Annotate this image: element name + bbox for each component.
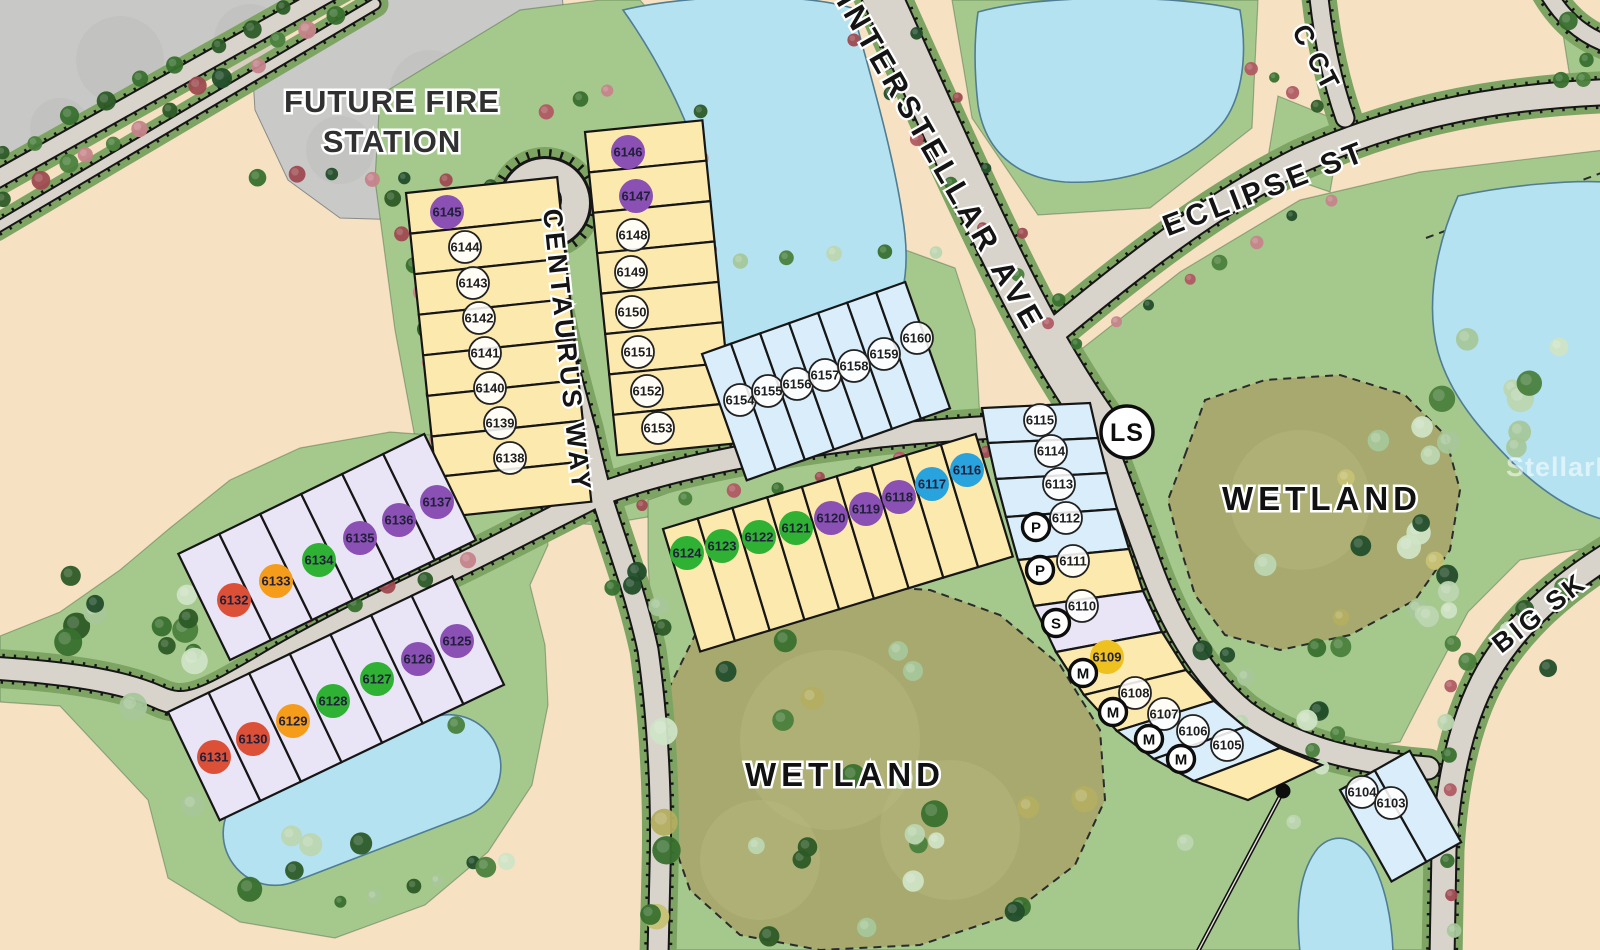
lot-number: 6113 <box>1045 477 1073 492</box>
lot-number: 6109 <box>1093 650 1122 665</box>
lot-number: 6104 <box>1348 785 1378 800</box>
ls-label: LS <box>1110 419 1144 447</box>
tree-highlight <box>191 79 199 87</box>
tree-highlight <box>1340 472 1348 480</box>
lot-marker-6139: 6139 <box>484 407 516 439</box>
lot-marker-6127: 6127 <box>360 662 394 696</box>
tree-highlight <box>288 864 296 872</box>
tree-highlight <box>801 840 810 849</box>
lot-marker-6151: 6151 <box>622 336 654 368</box>
tree-highlight <box>1512 424 1522 434</box>
tree-highlight <box>182 612 191 621</box>
tree-highlight <box>1312 704 1321 713</box>
tree-highlight <box>1446 681 1452 687</box>
tree-highlight <box>420 574 427 581</box>
lot-marker-6116: 6116 <box>950 453 984 487</box>
tree-highlight <box>1335 611 1343 619</box>
tree-highlight <box>1441 584 1451 594</box>
lot-marker-6114: 6114 <box>1035 435 1067 467</box>
lot-number: 6154 <box>726 393 756 408</box>
lot-marker-6153: 6153 <box>642 412 674 444</box>
lot-number: 6142 <box>465 311 494 326</box>
tree-highlight <box>367 174 374 181</box>
lot-number: 6152 <box>633 384 662 399</box>
tree-highlight <box>396 228 403 235</box>
site-plan-canvas: 6145614461436142614161406139613861466147… <box>0 0 1600 950</box>
lot-number: 6143 <box>459 276 488 291</box>
lot-number: 6107 <box>1150 707 1179 722</box>
tree-highlight <box>1019 229 1024 234</box>
tree-highlight <box>180 587 189 596</box>
tree-highlight <box>1288 88 1294 94</box>
tree-highlight <box>58 632 71 645</box>
tree-highlight <box>169 59 177 67</box>
lot-number: 6159 <box>870 347 899 362</box>
lot-number: 6145 <box>433 205 462 220</box>
lot-number: 6119 <box>852 502 880 517</box>
tree-highlight <box>773 484 779 490</box>
lot-number: 6148 <box>619 228 648 243</box>
tree-highlight <box>681 493 687 499</box>
tree-highlight <box>908 827 917 836</box>
lot-number: 6127 <box>363 672 392 687</box>
tree-highlight <box>272 34 279 41</box>
tree-highlight <box>1520 374 1531 385</box>
lot-marker-6149: 6149 <box>615 256 647 288</box>
tree-highlight <box>1289 817 1296 824</box>
lot-marker-6129: 6129 <box>276 704 310 738</box>
tree-highlight <box>1433 389 1445 401</box>
tree-highlight <box>1442 856 1449 863</box>
lot-number: 6137 <box>423 495 452 510</box>
tree-highlight <box>450 719 458 727</box>
lot-number: 6117 <box>918 477 946 492</box>
lot-number: 6156 <box>783 377 812 392</box>
tree-highlight <box>134 73 141 80</box>
tree-highlight <box>860 920 869 929</box>
tree-highlight <box>64 568 73 577</box>
lot-marker-6126: 6126 <box>401 642 435 676</box>
tree-highlight <box>931 835 938 842</box>
lot-marker-6120: 6120 <box>814 501 848 535</box>
tree-highlight <box>1447 638 1454 645</box>
lot-marker-6140: 6140 <box>474 372 506 404</box>
tree-highlight <box>1509 440 1518 449</box>
badge-letter: M <box>1107 705 1120 722</box>
tree-highlight <box>369 891 376 898</box>
lot-marker-6148: 6148 <box>617 219 649 251</box>
lot-marker-6113: 6113 <box>1043 468 1075 500</box>
tree-highlight <box>1300 712 1310 722</box>
lot-marker-6138: 6138 <box>494 442 526 474</box>
tree-highlight <box>906 873 916 883</box>
tree-highlight <box>1552 340 1560 348</box>
tree-highlight <box>575 93 582 100</box>
lot-number: 6149 <box>617 265 646 280</box>
lot-number: 6121 <box>782 521 811 536</box>
tree-highlight <box>1542 662 1550 670</box>
tree-highlight <box>62 157 71 166</box>
tree-highlight <box>804 690 814 700</box>
lot-marker-6128: 6128 <box>316 684 350 718</box>
tree-highlight <box>1258 557 1268 567</box>
lot-marker-6111: 6111 <box>1057 545 1089 577</box>
lot-marker-6147: 6147 <box>619 179 653 213</box>
tree-highlight <box>89 597 97 605</box>
fire-station-label-line1: FUTURE FIRE <box>284 84 500 119</box>
tree-highlight <box>30 138 37 145</box>
lot-number: 6146 <box>614 145 643 160</box>
lot-marker-6159: 6159 <box>868 338 900 370</box>
lot-marker-6150: 6150 <box>616 296 648 328</box>
tree-highlight <box>479 860 488 869</box>
lot-number: 6140 <box>476 381 505 396</box>
wetland-label-right: WETLAND <box>1222 480 1422 517</box>
tree-highlight <box>541 106 548 113</box>
badge-P-6112: P <box>1023 514 1050 541</box>
badge-M-6108: M <box>1100 699 1127 726</box>
tree-highlight <box>301 23 309 31</box>
tree-highlight <box>1354 538 1363 547</box>
tree-highlight <box>1332 728 1339 735</box>
tree-highlight <box>100 94 109 103</box>
lot-marker-6157: 6157 <box>809 359 841 391</box>
tree-highlight <box>185 797 195 807</box>
tree-highlight <box>442 175 448 181</box>
tree-highlight <box>1582 55 1588 61</box>
badge-M-6107: M <box>1136 726 1163 753</box>
tree-highlight <box>165 105 172 112</box>
lot-marker-6135: 6135 <box>343 521 377 555</box>
lot-marker-6117: 6117 <box>915 467 949 501</box>
tree-highlight <box>1240 671 1248 679</box>
tree-highlight <box>1440 434 1450 444</box>
tree-highlight <box>630 565 639 574</box>
lot-number: 6132 <box>220 593 249 608</box>
tree-highlight <box>777 632 787 642</box>
lot-marker-6154: 6154 <box>724 384 756 416</box>
lot-marker-6152: 6152 <box>631 375 663 407</box>
lot-number: 6138 <box>496 451 525 466</box>
tree-highlight <box>34 174 42 182</box>
lot-number: 6103 <box>1377 796 1406 811</box>
lot-marker-6104: 6104 <box>1346 776 1378 808</box>
tree-highlight <box>638 501 643 506</box>
tree-highlight <box>1054 295 1060 301</box>
lot-number: 6126 <box>404 652 433 667</box>
lot-marker-6131: 6131 <box>197 740 231 774</box>
tree-highlight <box>336 897 341 902</box>
badge-letter: P <box>1035 563 1045 580</box>
tree-highlight <box>891 644 900 653</box>
lot-number: 6158 <box>840 359 869 374</box>
lot-marker-6156: 6156 <box>781 368 813 400</box>
lot-marker-6134: 6134 <box>302 543 336 577</box>
tree-highlight <box>1424 448 1433 457</box>
lot-number: 6112 <box>1052 511 1080 526</box>
tree-highlight <box>657 621 665 629</box>
tree-highlight <box>1447 891 1453 897</box>
tree-highlight <box>185 651 197 663</box>
tree-highlight <box>603 86 608 91</box>
tree-highlight <box>1429 554 1437 562</box>
tree-highlight <box>124 697 136 709</box>
tree-highlight <box>607 582 614 589</box>
lot-marker-6115: 6115 <box>1024 404 1056 436</box>
tree-highlight <box>303 836 313 846</box>
tree-highlight <box>329 9 337 17</box>
tree-highlight <box>776 712 786 722</box>
fire-station-label-line2: STATION <box>323 124 461 159</box>
tree-highlight <box>880 246 887 253</box>
lot-number: 6115 <box>1026 413 1054 428</box>
tree-highlight <box>251 171 259 179</box>
lot-number: 6139 <box>486 416 515 431</box>
tree-highlight <box>1421 609 1431 619</box>
tree-highlight <box>1562 14 1570 22</box>
lot-number: 6144 <box>451 240 481 255</box>
tree-highlight <box>1308 745 1315 752</box>
badge-letter: P <box>1031 520 1041 537</box>
lot-number: 6136 <box>385 513 414 528</box>
lot-number: 6133 <box>262 574 291 589</box>
tree-highlight <box>696 106 702 112</box>
lot-number: 6128 <box>319 694 348 709</box>
badge-M-6109: M <box>1070 660 1097 687</box>
tree-highlight <box>1555 74 1562 81</box>
lot-marker-6141: 6141 <box>469 337 501 369</box>
lot-marker-6118: 6118 <box>882 480 916 514</box>
tree-highlight <box>1415 419 1425 429</box>
tree-highlight <box>983 164 988 169</box>
lot-number: 6110 <box>1068 599 1096 614</box>
lot-number: 6130 <box>239 732 268 747</box>
lot-number: 6155 <box>754 384 783 399</box>
lot-number: 6114 <box>1037 444 1066 459</box>
tree-highlight <box>762 929 771 938</box>
tree-highlight <box>469 858 475 864</box>
badge-S-6110: S <box>1043 610 1070 637</box>
tree-highlight <box>906 664 915 673</box>
lot-marker-6146: 6146 <box>611 135 645 169</box>
tree-highlight <box>1113 318 1118 323</box>
lot-marker-6103: 6103 <box>1375 787 1407 819</box>
lot-number: 6106 <box>1179 724 1208 739</box>
lot-number: 6131 <box>200 750 229 765</box>
tree-highlight <box>161 640 169 648</box>
tree-highlight <box>80 149 87 156</box>
tree-highlight <box>816 473 821 478</box>
tree-highlight <box>1008 904 1017 913</box>
lot-marker-6112: 6112 <box>1050 502 1082 534</box>
tree-highlight <box>1578 74 1585 81</box>
lot-number: 6118 <box>885 490 913 505</box>
tree-highlight <box>241 880 252 891</box>
tree-highlight <box>1327 196 1332 201</box>
tree-highlight <box>1443 604 1450 611</box>
lot-marker-6155: 6155 <box>752 375 784 407</box>
lot-number: 6122 <box>745 530 774 545</box>
badge-P-6111: P <box>1027 557 1054 584</box>
tree-highlight <box>1440 568 1450 578</box>
tree-highlight <box>657 840 670 853</box>
tree-highlight <box>1459 331 1469 341</box>
tree-highlight <box>278 2 284 8</box>
badge-letter: M <box>1077 666 1090 683</box>
lot-marker-6133: 6133 <box>259 564 293 598</box>
lot-number: 6111 <box>1059 554 1087 569</box>
tree-highlight <box>1247 64 1253 70</box>
lot-marker-6143: 6143 <box>457 267 489 299</box>
tree-highlight <box>1214 257 1221 264</box>
tree-highlight <box>1145 301 1150 306</box>
tree-highlight <box>1334 639 1343 648</box>
tree-highlight <box>284 828 293 837</box>
tree-highlight <box>500 855 508 863</box>
site-plan-map: 6145614461436142614161406139613861466147… <box>0 0 1600 950</box>
tree-highlight <box>1179 837 1186 844</box>
tree-highlight <box>729 485 735 491</box>
lift-station-badge: LS <box>1101 406 1153 458</box>
tree-highlight <box>253 60 260 67</box>
lot-number: 6141 <box>471 346 500 361</box>
tree-highlight <box>327 170 333 176</box>
tree-highlight <box>1222 649 1229 656</box>
tree-highlight <box>1073 340 1078 345</box>
lot-marker-6158: 6158 <box>838 350 870 382</box>
tree-highlight <box>1440 716 1448 724</box>
tree-highlight <box>925 804 937 816</box>
lot-marker-6137: 6137 <box>420 485 454 519</box>
tree-highlight <box>400 174 406 180</box>
tree-highlight <box>134 123 141 130</box>
lot-marker-6136: 6136 <box>382 503 416 537</box>
tree-highlight <box>751 840 759 848</box>
lot-number: 6108 <box>1121 686 1150 701</box>
lot-number: 6150 <box>618 305 647 320</box>
tree-highlight <box>954 94 959 99</box>
tree-highlight <box>655 813 667 825</box>
tree-highlight <box>1075 790 1087 802</box>
tree-highlight <box>1271 74 1276 79</box>
lot-number: 6124 <box>673 546 703 561</box>
lot-marker-6105: 6105 <box>1211 729 1243 761</box>
tree-highlight <box>1461 655 1469 663</box>
tree-highlight <box>409 881 416 888</box>
tree-highlight <box>719 664 728 673</box>
tree-highlight <box>1446 785 1452 791</box>
tree-highlight <box>829 248 836 255</box>
lot-marker-6130: 6130 <box>236 722 270 756</box>
tree-highlight <box>982 447 988 453</box>
lot-marker-6106: 6106 <box>1177 715 1209 747</box>
wetland-label-central: WETLAND <box>745 756 945 793</box>
lot-marker-6122: 6122 <box>742 520 776 554</box>
tree-highlight <box>1252 238 1258 244</box>
tree-highlight <box>651 599 660 608</box>
lot-number: 6160 <box>903 331 932 346</box>
tree-highlight <box>155 619 164 628</box>
tree-highlight <box>654 721 667 734</box>
tree-highlight <box>214 41 221 48</box>
badge-letter: S <box>1051 616 1061 633</box>
tree-highlight <box>912 29 918 35</box>
lot-marker-6121: 6121 <box>779 511 813 545</box>
lot-marker-6145: 6145 <box>430 195 464 229</box>
lot-number: 6125 <box>443 634 472 649</box>
tree-highlight <box>215 71 224 80</box>
tree-highlight <box>1371 433 1381 443</box>
tree-highlight <box>433 876 439 882</box>
lot-number: 6157 <box>811 368 840 383</box>
badge-letter: M <box>1175 752 1188 769</box>
lot-marker-6125: 6125 <box>440 624 474 658</box>
tree-highlight <box>781 253 788 260</box>
lot-number: 6153 <box>644 421 673 436</box>
tree-highlight <box>1186 275 1191 280</box>
lot-number: 6135 <box>346 531 375 546</box>
tree-highlight <box>1196 643 1205 652</box>
lot-number: 6116 <box>953 463 981 478</box>
badge-M-6106: M <box>1168 746 1195 773</box>
tree-highlight <box>1313 102 1319 108</box>
lot-marker-6123: 6123 <box>705 529 739 563</box>
lot-marker-6124: 6124 <box>670 536 704 570</box>
lot-number: 6151 <box>624 345 653 360</box>
lot-marker-6144: 6144 <box>449 231 481 263</box>
tree-highlight <box>1021 799 1031 809</box>
lot-number: 6120 <box>817 511 846 526</box>
tree-highlight <box>108 139 115 146</box>
tree-highlight <box>1310 641 1318 649</box>
lot-marker-6110: 6110 <box>1066 590 1098 622</box>
tree-highlight <box>1449 925 1456 932</box>
lot-number: 6105 <box>1213 738 1242 753</box>
lot-number: 6123 <box>708 539 737 554</box>
tree-highlight <box>291 168 299 176</box>
tree-highlight <box>735 255 742 262</box>
tree-highlight <box>67 616 79 628</box>
tree-highlight <box>1415 517 1423 525</box>
utility-pin-icon <box>1276 784 1291 799</box>
tree-highlight <box>387 192 395 200</box>
tree-highlight <box>932 248 938 254</box>
lot-marker-6160: 6160 <box>901 322 933 354</box>
lot-number: 6147 <box>622 189 651 204</box>
lot-marker-6119: 6119 <box>849 492 883 526</box>
tree-highlight <box>643 907 652 916</box>
tree-highlight <box>246 23 254 31</box>
lot-marker-6132: 6132 <box>217 583 251 617</box>
tree-highlight <box>462 554 469 561</box>
tree-highlight <box>1444 749 1451 756</box>
tree-highlight <box>1288 212 1293 217</box>
tree-highlight <box>353 835 363 845</box>
lot-number: 6134 <box>305 553 335 568</box>
tree-highlight <box>63 109 72 118</box>
tree-highlight <box>1400 538 1411 549</box>
lot-number: 6129 <box>279 714 308 729</box>
lot-marker-6142: 6142 <box>463 302 495 334</box>
badge-letter: M <box>1143 732 1156 749</box>
